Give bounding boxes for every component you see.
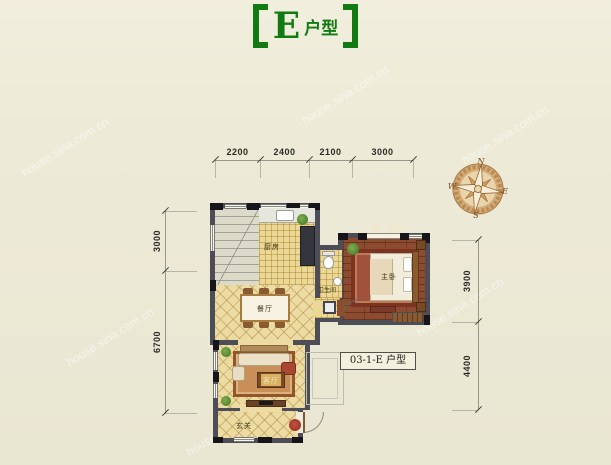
- dim-label: 2100: [309, 147, 352, 157]
- compass-north-label: N: [477, 157, 486, 166]
- window: [213, 384, 218, 398]
- room-foyer: [218, 411, 298, 438]
- bed-headboard: [412, 251, 419, 303]
- room-label-bathroom: 卫生间: [318, 285, 336, 294]
- bracket-left-icon: [253, 4, 268, 48]
- dim-guide: [309, 160, 310, 178]
- dim-label: 2200: [215, 147, 260, 157]
- dim-guide: [352, 160, 353, 178]
- compass-west-label: W: [448, 182, 457, 191]
- dim-guide: [452, 240, 478, 241]
- dim-line: [215, 160, 413, 161]
- porch-step: [312, 358, 338, 399]
- wall-pier: [213, 437, 223, 443]
- compass-east-label: E: [501, 187, 508, 196]
- plant-icon: [221, 396, 231, 406]
- french-door-threshold: [366, 233, 402, 239]
- wall-pier: [258, 437, 272, 443]
- dim-label: 4400: [462, 336, 472, 396]
- toilet: [323, 256, 334, 269]
- window: [213, 352, 218, 370]
- bracket-right-icon: [343, 4, 358, 48]
- wall-pier: [213, 372, 219, 382]
- title-unit-type: 户型: [304, 19, 338, 39]
- wall-pier: [292, 437, 303, 443]
- title-unit-letter: E: [273, 5, 300, 47]
- window: [408, 234, 422, 239]
- dining-chair: [275, 321, 285, 328]
- entry-door-leaf: [303, 412, 305, 433]
- dim-guide: [165, 271, 197, 272]
- bay-step: [392, 312, 424, 323]
- sofa-console: [240, 345, 288, 352]
- room-label-dining: 餐厅: [257, 304, 273, 314]
- plant-icon: [221, 347, 231, 357]
- window: [210, 225, 215, 251]
- french-door-leaf-icon: [386, 219, 402, 233]
- room-label-living: 客厅: [263, 376, 279, 386]
- dim-label: 3000: [152, 211, 162, 271]
- wall-pier: [210, 203, 223, 210]
- dining-chair: [259, 321, 269, 328]
- kitchen-sink: [276, 210, 294, 221]
- dim-line: [478, 240, 479, 410]
- dim-label: 6700: [152, 312, 162, 372]
- watermark: house.sina.com.cn: [64, 305, 156, 370]
- dining-chair: [243, 321, 253, 328]
- dim-guide: [452, 410, 478, 411]
- nightstand: [416, 240, 426, 250]
- wall-pier: [213, 340, 219, 350]
- fridge: [300, 226, 315, 266]
- unit-label: 03-1-E 户型: [340, 352, 416, 370]
- plant-icon: [297, 214, 308, 225]
- wall-pier: [358, 233, 367, 240]
- room-label-foyer: 玄关: [236, 421, 252, 431]
- dim-guide: [215, 160, 216, 178]
- dim-label: 3900: [462, 251, 472, 311]
- wall-pier: [424, 315, 430, 325]
- plant-icon: [347, 243, 359, 255]
- room-label-kitchen: 厨房: [264, 242, 280, 252]
- dim-guide: [165, 211, 197, 212]
- washer: [323, 301, 336, 314]
- armchair: [232, 366, 245, 381]
- flower-pot-icon: [289, 419, 301, 431]
- dim-guide: [165, 413, 197, 414]
- compass-rose-icon: N W S E: [447, 156, 509, 220]
- nightstand: [416, 302, 426, 312]
- entry-door-arc: [303, 412, 324, 433]
- wall-pier: [338, 233, 348, 240]
- page-title: E户型: [0, 4, 611, 48]
- wall-pier: [210, 280, 216, 291]
- pillow: [403, 257, 412, 272]
- watermark: house.sina.com.cn: [19, 115, 111, 180]
- dim-line: [165, 211, 166, 413]
- dim-label: 2400: [260, 147, 309, 157]
- dim-guide: [413, 160, 414, 178]
- compass-south-label: S: [473, 211, 479, 220]
- wall-pier: [400, 233, 409, 240]
- opening-dining-hall: [313, 301, 322, 316]
- window: [234, 437, 254, 442]
- window: [225, 204, 246, 209]
- tv: [259, 401, 273, 405]
- pillow: [403, 277, 412, 292]
- room-label-master-bedroom: 主卧: [381, 272, 397, 282]
- floor-plan-page: E户型 house.sina.com.cn house.sina.com.cn …: [0, 0, 611, 465]
- french-door-leaf-icon: [368, 219, 384, 233]
- staircase-diagonal: [215, 208, 259, 290]
- dim-label: 3000: [352, 147, 413, 157]
- dim-tick: [475, 406, 482, 413]
- dim-guide: [452, 322, 478, 323]
- bedroom-door-leaf: [343, 299, 345, 316]
- watermark: house.sina.com.cn: [299, 63, 391, 128]
- dim-guide: [260, 160, 261, 178]
